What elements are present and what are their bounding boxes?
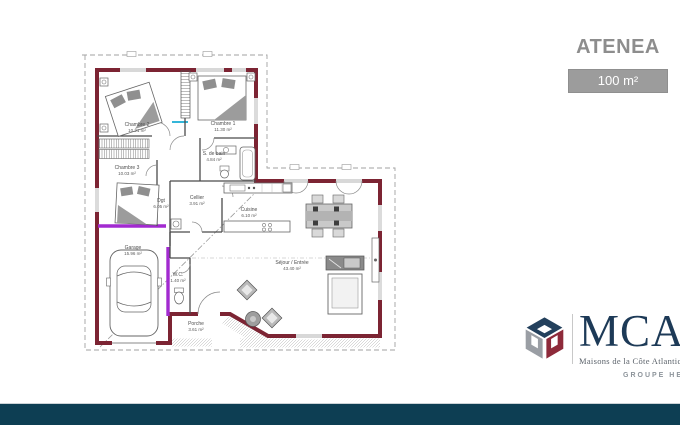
bottom-bar [0,403,680,425]
dining-table [306,195,352,237]
bed-chambre-3 [115,183,159,225]
model-title: ATENEA [568,36,668,59]
title-block: ATENEA 100 m² [568,36,668,93]
car [107,250,162,336]
shaft-hatch [181,71,190,118]
mca-cube-icon [521,312,568,364]
logo-text: MCA Maisons de la Côte Atlantique GROUPE… [579,307,680,379]
logo-group: GROUPE HEXAOM [623,372,680,379]
floor-plan-drawing [70,35,415,375]
area-badge: 100 m² [568,69,668,93]
wardrobe-hatch [99,139,149,159]
logo-divider [572,314,573,364]
kitchen-counters [224,183,292,232]
page: Chambre 2 10.21 m² Chambre 1 11.30 m² Ch… [0,0,680,425]
cellier-appliance [171,219,181,229]
mca-logo: MCA Maisons de la Côte Atlantique GROUPE… [521,307,680,387]
bathroom-fixtures [216,146,255,180]
living-furniture [237,238,379,328]
logo-name: MCA [579,307,680,355]
bed-chambre-1 [189,73,255,120]
wc-fixtures [175,288,184,304]
logo-subtitle: Maisons de la Côte Atlantique [579,356,680,366]
bed-chambre-2 [100,78,162,136]
floor-plan: Chambre 2 10.21 m² Chambre 1 11.30 m² Ch… [70,35,415,375]
